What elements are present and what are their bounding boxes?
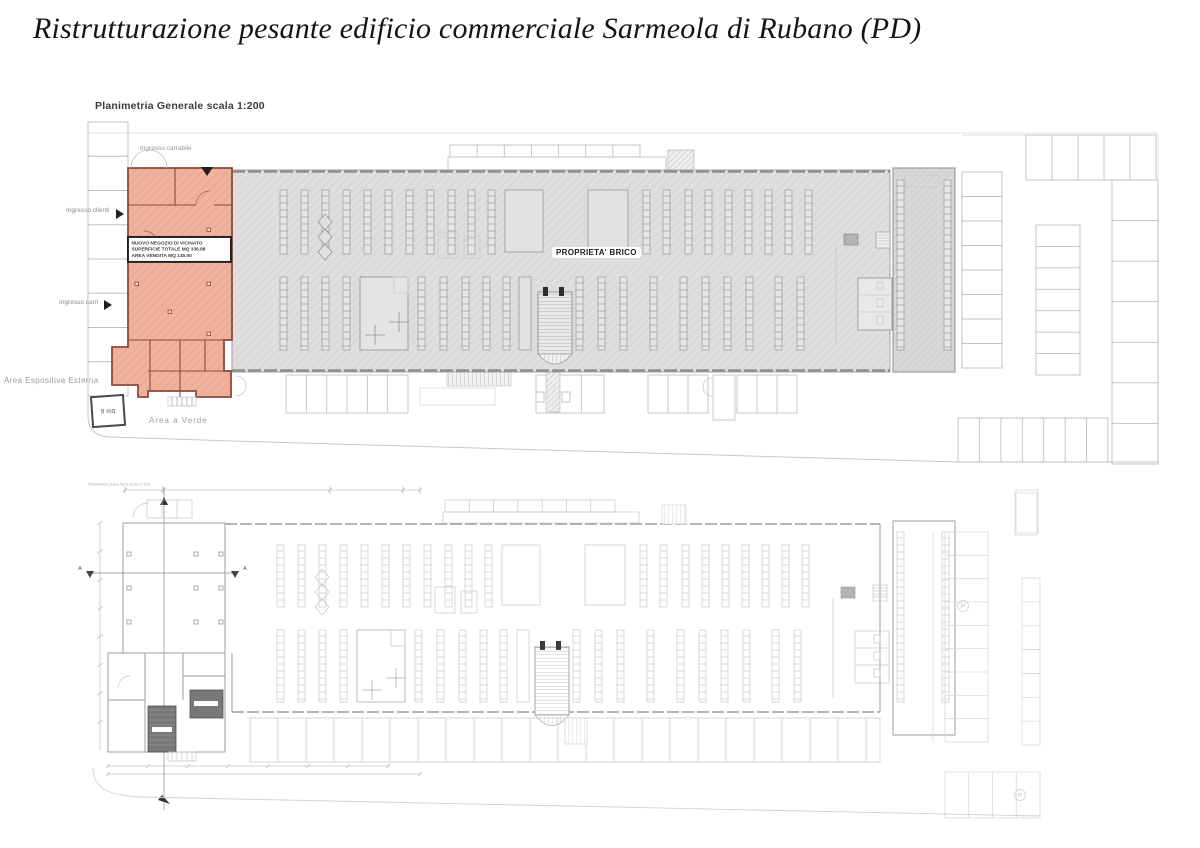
right-wing-outline [893, 493, 1037, 735]
right-wing [893, 168, 955, 372]
label-ingresso-carri: Ingresso carri [59, 299, 98, 306]
left-block [108, 500, 225, 761]
mq-box-label: 9 mq [101, 407, 116, 415]
label-proprieta-brico: PROPRIETA' BRICO [552, 247, 641, 258]
section-marker-a-left: A [78, 566, 82, 572]
bottom-stall-row [250, 718, 880, 762]
label-area-verde: Area a Verde [149, 416, 208, 425]
new-shop-info-box: NUOVO NEGOZIO DI VICINATO SUPERFICIE TOT… [127, 236, 232, 263]
parking-symbol: P [961, 605, 965, 611]
bottom-plan-title: Planimetria piano terra scala 1:100 [88, 482, 150, 487]
bottom-plan-group [86, 486, 1040, 818]
info-line-3: AREA VENDITA MQ 145.00 [131, 253, 227, 259]
mq-box: 9 mq [90, 394, 126, 428]
central-stairs [538, 287, 572, 364]
top-plan-title: Planimetria Generale scala 1:200 [95, 100, 265, 112]
top-plan-group [88, 122, 1158, 464]
loading-canopy [448, 145, 694, 170]
label-ingresso-carrabile: Ingresso carrabile [140, 145, 192, 152]
parking-symbol: P [1018, 794, 1022, 800]
section-marker-a-right: A [243, 566, 247, 572]
service-rooms-outline [833, 585, 889, 698]
label-area-espositiva: Area Espositiva Esterna [4, 376, 99, 385]
label-ingresso-clienti: Ingresso clienti [66, 207, 109, 214]
stairs-outline [535, 641, 569, 726]
dimension-lines [86, 486, 422, 810]
new-shop-highlight [104, 150, 232, 406]
presentation-page: Ristrutturazione pesante edificio commer… [0, 0, 1200, 848]
